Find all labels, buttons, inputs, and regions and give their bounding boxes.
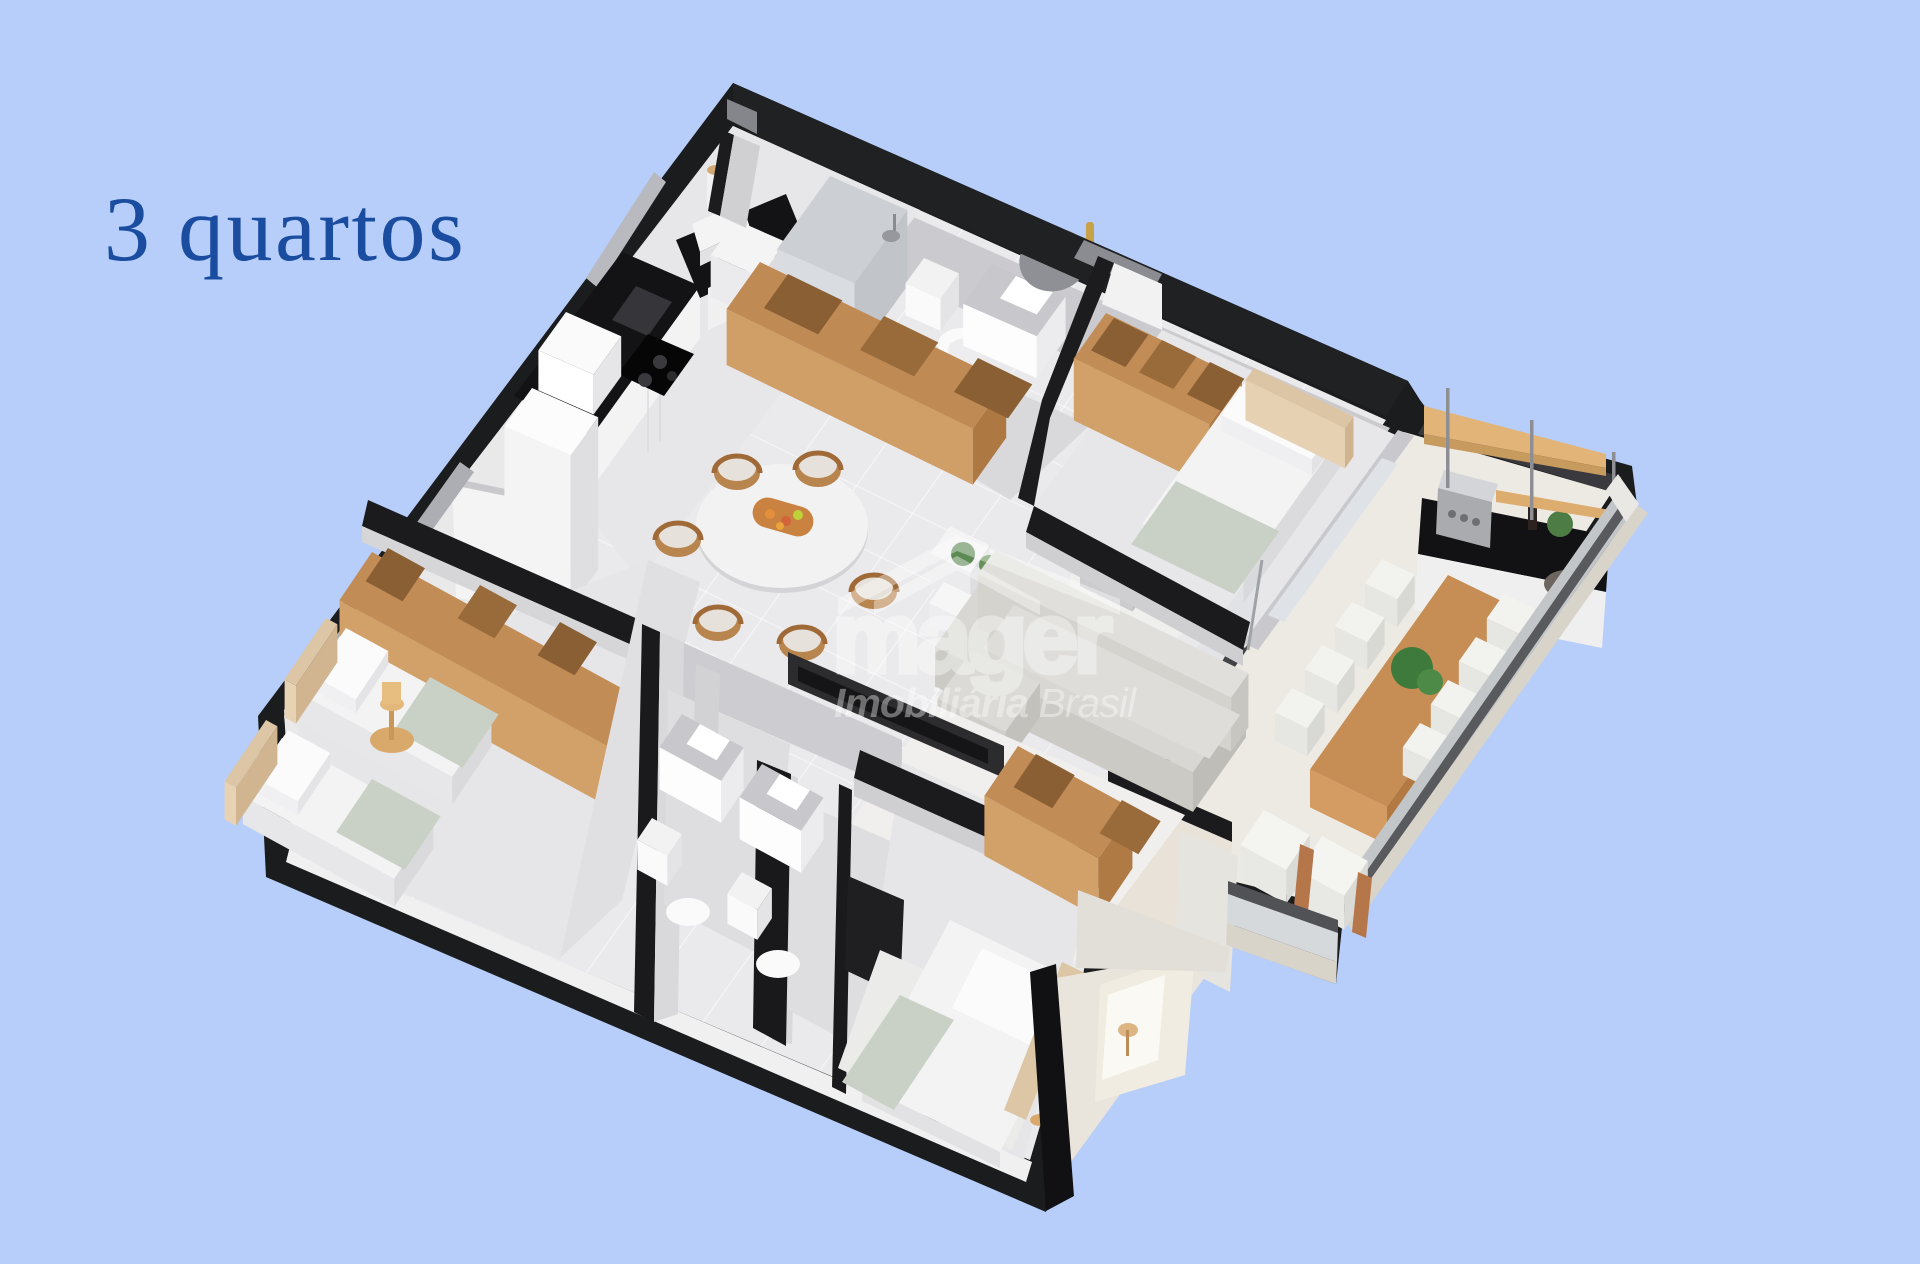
svg-text:3 quartos: 3 quartos [104, 178, 466, 280]
svg-text:mager: mager [832, 582, 1111, 694]
svg-text:Imobiliária Brasil: Imobiliária Brasil [834, 680, 1138, 726]
